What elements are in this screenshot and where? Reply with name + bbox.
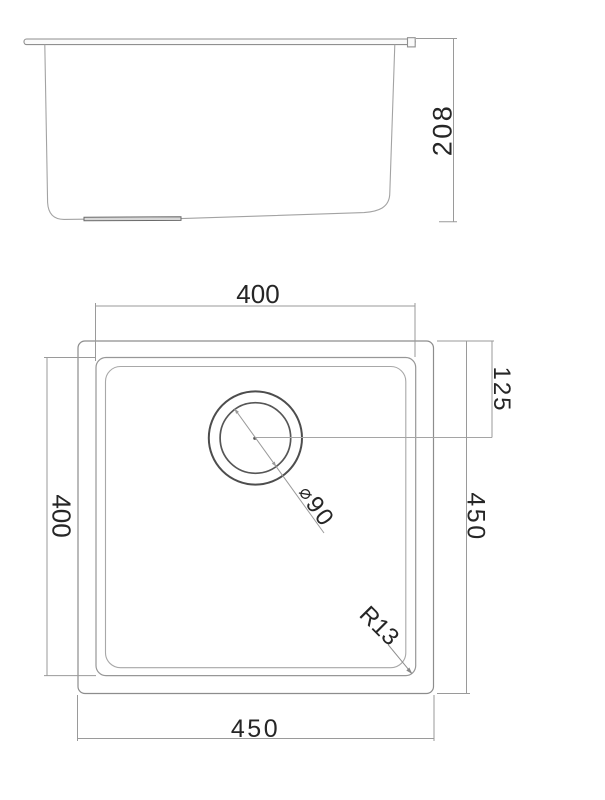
- svg-text:450: 450: [462, 492, 490, 541]
- svg-text:208: 208: [428, 104, 458, 157]
- svg-text:450: 450: [231, 715, 280, 743]
- svg-text:400: 400: [236, 279, 279, 309]
- svg-text:⌀90: ⌀90: [292, 481, 340, 533]
- svg-text:400: 400: [47, 494, 77, 537]
- svg-text:R13: R13: [354, 601, 404, 651]
- svg-text:125: 125: [488, 366, 515, 412]
